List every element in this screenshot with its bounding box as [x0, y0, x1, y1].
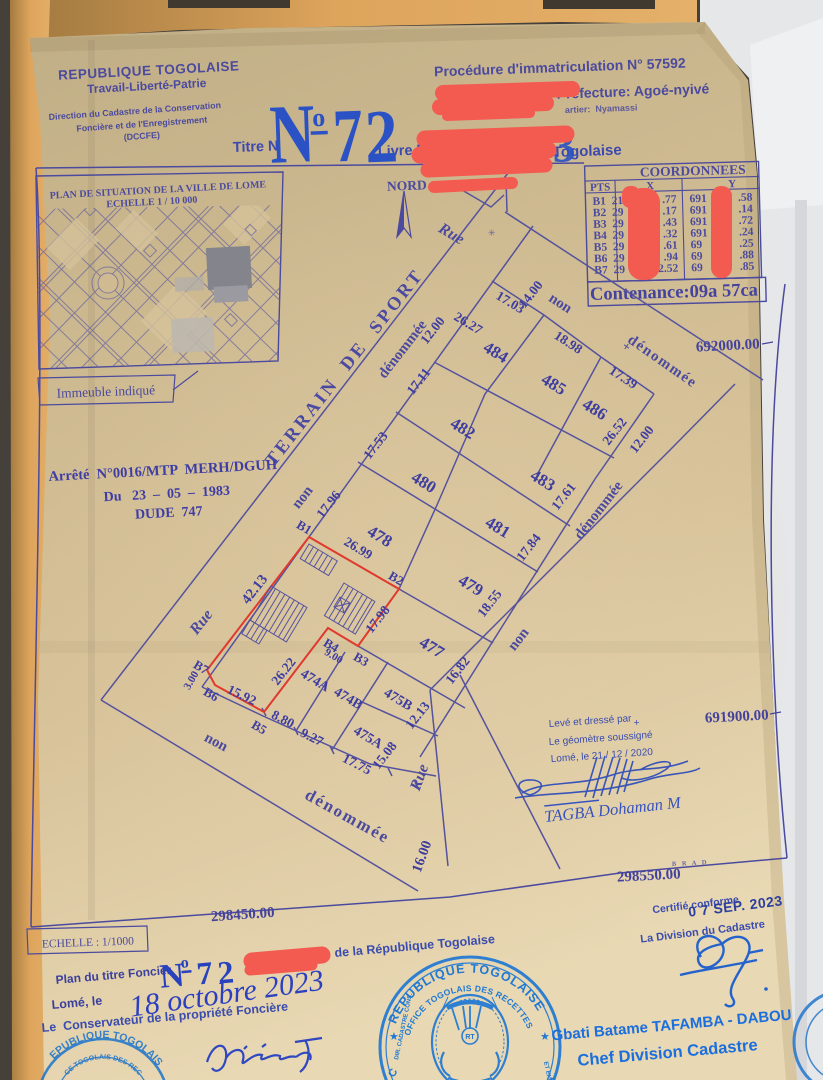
svg-text:691: 691: [690, 227, 708, 239]
svg-text:Y: Y: [728, 178, 736, 190]
svg-text:✳: ✳: [488, 228, 496, 238]
svg-text:N: N: [268, 87, 316, 182]
svg-text:★: ★: [540, 1031, 550, 1043]
svg-text:.24: .24: [739, 226, 754, 238]
svg-text:PTS: PTS: [590, 181, 610, 194]
svg-text:2: 2: [363, 94, 399, 179]
svg-text:69: 69: [691, 250, 703, 262]
svg-text:.85: .85: [740, 261, 755, 273]
svg-text:.25: .25: [739, 238, 754, 250]
svg-text:COORDONNEES: COORDONNEES: [640, 162, 746, 180]
svg-text:.77: .77: [662, 194, 677, 206]
svg-text:.88: .88: [739, 249, 754, 261]
svg-text:+: +: [633, 718, 640, 729]
svg-text:.61: .61: [663, 240, 678, 252]
svg-text:69: 69: [691, 239, 703, 251]
svg-text:NORD: NORD: [387, 177, 427, 193]
svg-text:o: o: [180, 954, 189, 972]
svg-text:2.52: 2.52: [658, 263, 679, 276]
svg-text:692000.00: 692000.00: [696, 336, 761, 355]
svg-text:RT: RT: [465, 1034, 475, 1041]
svg-text:.17: .17: [662, 205, 677, 217]
svg-text:.58: .58: [738, 192, 753, 204]
svg-text:o: o: [312, 103, 326, 132]
svg-text:.32: .32: [663, 228, 678, 240]
svg-text:691900.00: 691900.00: [705, 707, 770, 726]
svg-text:.94: .94: [663, 251, 678, 263]
svg-text:.14: .14: [738, 203, 753, 215]
svg-text:69: 69: [691, 262, 703, 274]
svg-text:B7 29: B7 29: [594, 264, 625, 277]
svg-text:298550.00: 298550.00: [617, 866, 682, 885]
svg-text:.43: .43: [663, 217, 678, 229]
svg-text:.72: .72: [739, 215, 754, 227]
